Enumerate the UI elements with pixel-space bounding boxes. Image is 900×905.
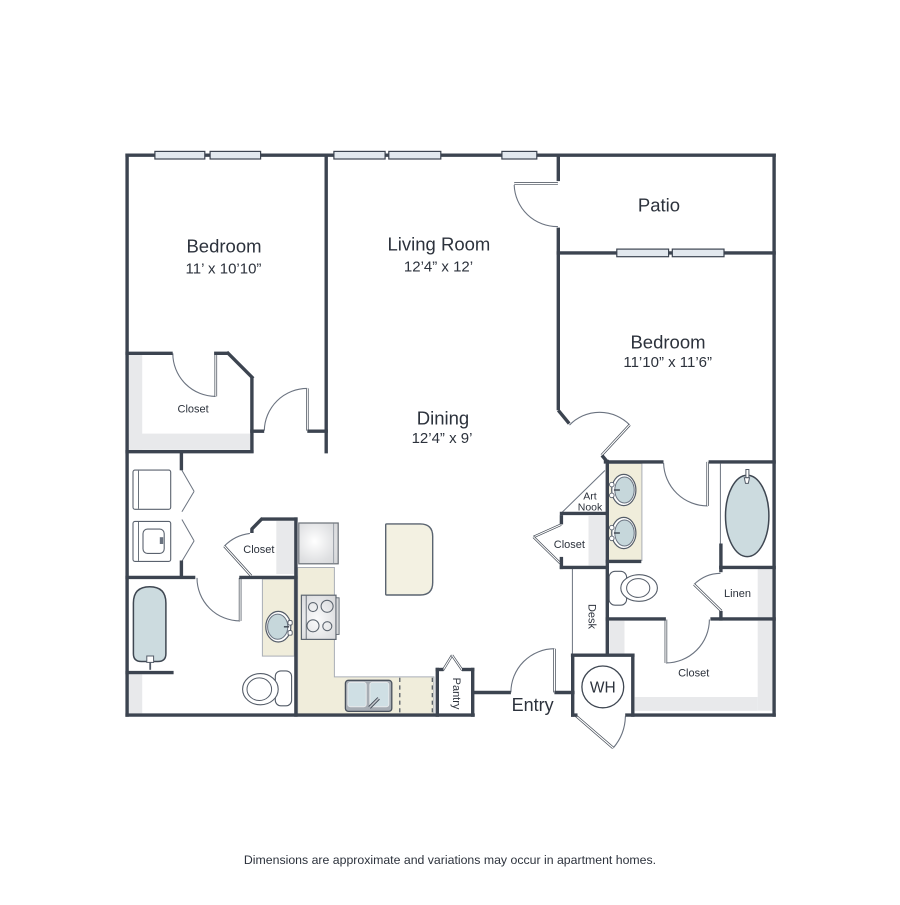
svg-text:12’4” x 9’: 12’4” x 9’ bbox=[412, 430, 473, 447]
svg-text:11’10” x 11’6”: 11’10” x 11’6” bbox=[623, 354, 712, 371]
svg-text:Bedroom: Bedroom bbox=[630, 331, 705, 352]
svg-text:WH: WH bbox=[590, 679, 616, 696]
svg-text:Closet: Closet bbox=[243, 544, 274, 556]
svg-text:Pantry: Pantry bbox=[450, 678, 462, 710]
svg-text:Entry: Entry bbox=[512, 695, 554, 715]
svg-text:Linen: Linen bbox=[724, 588, 751, 600]
svg-text:Dining: Dining bbox=[417, 408, 469, 429]
svg-text:Closet: Closet bbox=[178, 404, 209, 416]
svg-text:Closet: Closet bbox=[678, 668, 709, 680]
svg-text:Bedroom: Bedroom bbox=[186, 235, 261, 256]
svg-text:Dimensions are approximate and: Dimensions are approximate and variation… bbox=[244, 853, 656, 867]
svg-text:Nook: Nook bbox=[578, 501, 603, 513]
svg-text:Desk: Desk bbox=[586, 604, 598, 630]
svg-text:Patio: Patio bbox=[638, 195, 680, 216]
svg-text:12’4” x 12’: 12’4” x 12’ bbox=[404, 259, 473, 276]
svg-text:11’ x 10’10”: 11’ x 10’10” bbox=[186, 261, 262, 278]
svg-text:Closet: Closet bbox=[554, 539, 585, 551]
svg-text:Living Room: Living Room bbox=[387, 233, 490, 254]
